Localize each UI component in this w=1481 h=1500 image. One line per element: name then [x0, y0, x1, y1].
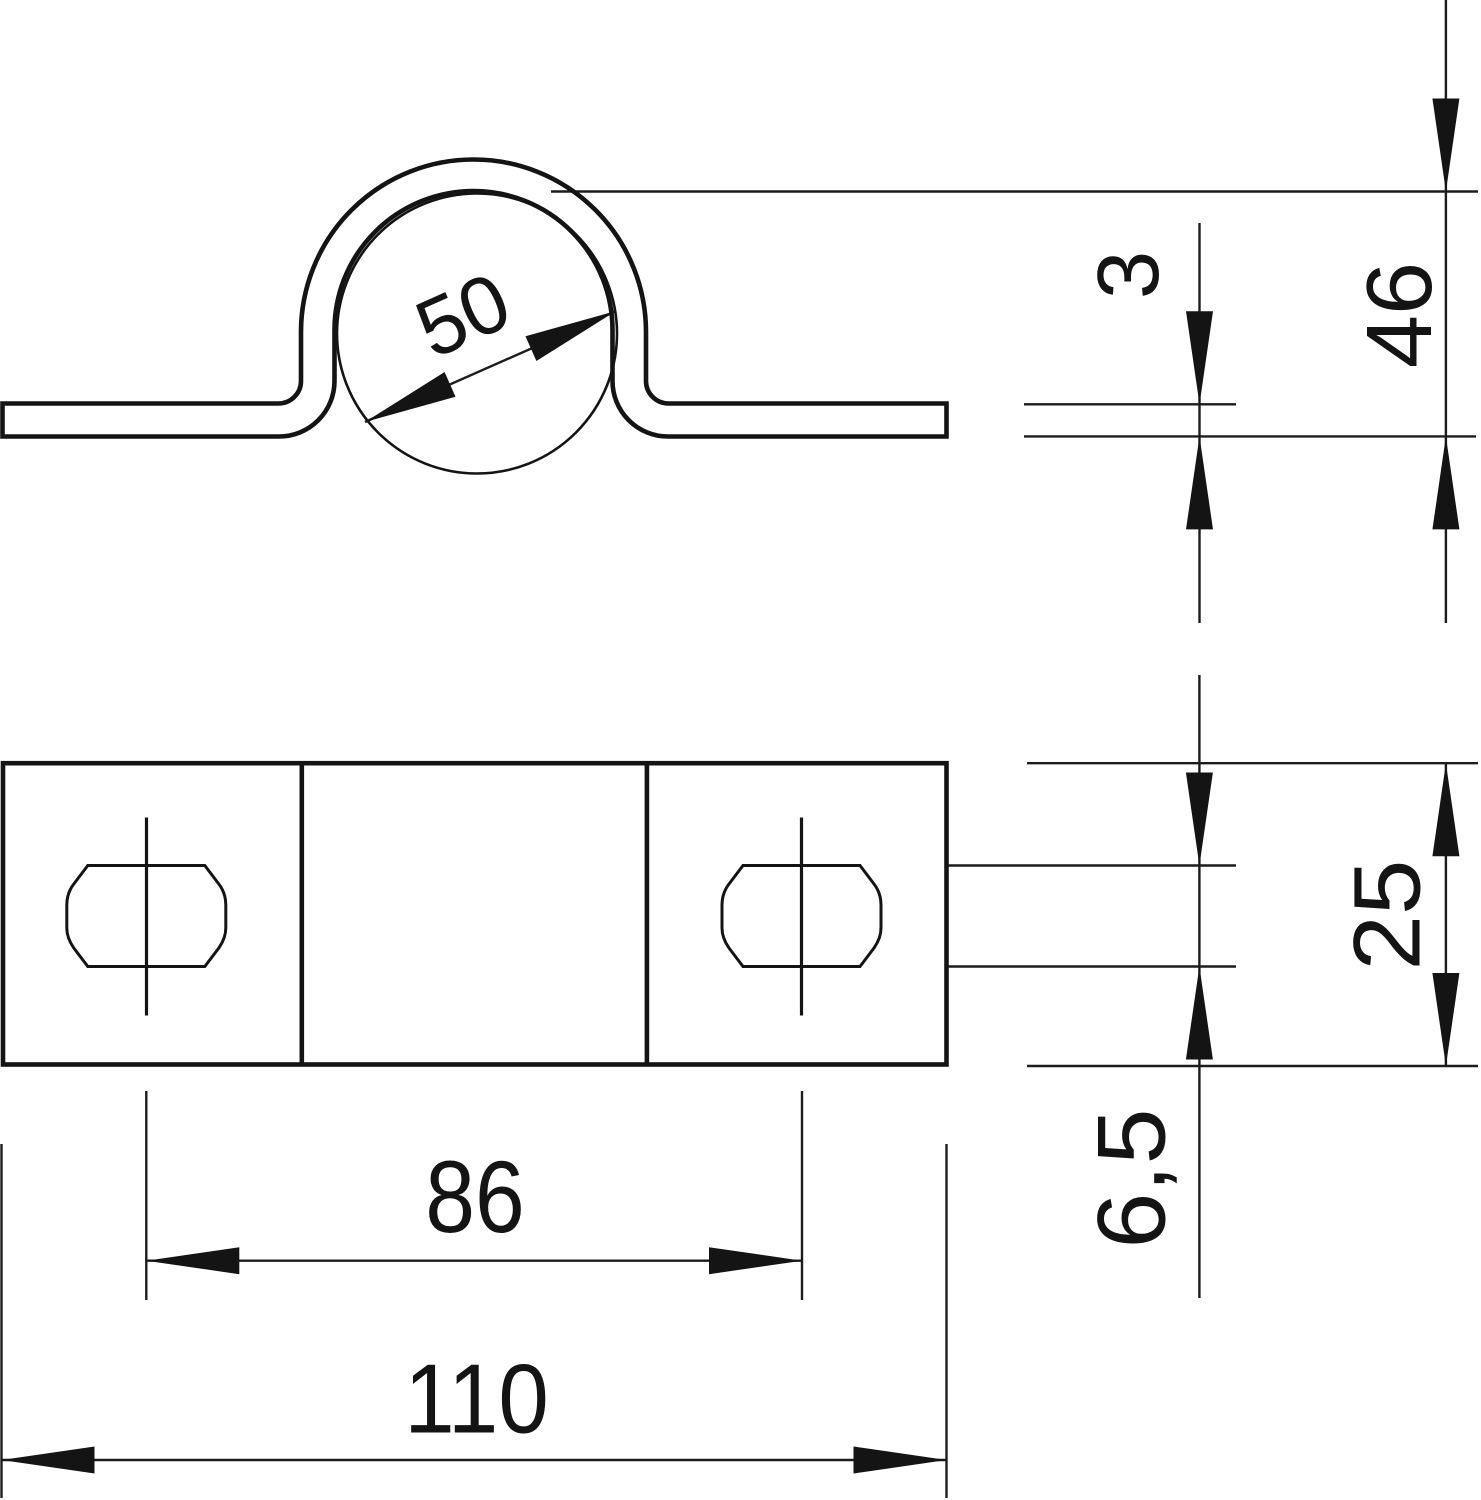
- svg-text:6,5: 6,5: [1076, 1108, 1185, 1248]
- svg-text:110: 110: [404, 1344, 549, 1454]
- svg-text:25: 25: [1334, 860, 1440, 971]
- svg-text:3: 3: [1080, 251, 1177, 299]
- svg-text:86: 86: [425, 1141, 525, 1255]
- svg-text:46: 46: [1348, 262, 1451, 369]
- svg-text:50: 50: [403, 256, 523, 376]
